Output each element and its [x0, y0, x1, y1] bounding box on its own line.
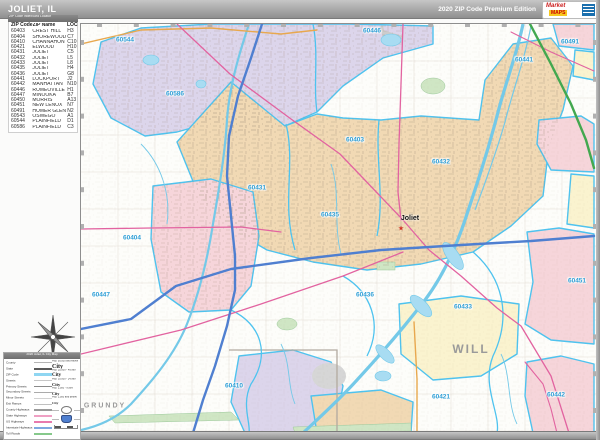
zip-index-title-bar: ZIP Code Index/Grid Locator [8, 15, 78, 22]
zip-label-60544: 60544 [116, 37, 134, 44]
zip-label-60410: 60410 [225, 383, 243, 390]
map-poster-page: JOLIET, IL 2020 ZIP Code Premium Edition… [0, 0, 600, 440]
edition-label: 2020 ZIP Code Premium Edition [438, 6, 536, 13]
legend-line-items: CountyStateZIP CodeStreetsPrimary Street… [4, 359, 52, 437]
zip-label-60442: 60442 [547, 392, 565, 399]
zip-label-60441: 60441 [515, 57, 533, 64]
zip-label-60421: 60421 [432, 394, 450, 401]
zip-label-60451: 60451 [568, 278, 586, 285]
logo-brand-bottom: MAPS [549, 10, 567, 16]
county-label-grundy: GRUNDY [84, 403, 126, 410]
scale-bar [54, 425, 78, 429]
right-edge-bar [596, 0, 600, 440]
county-label-will: WILL [452, 342, 489, 356]
zip-index-table: ZIP Code Index/Grid Locator ZIP Code ZIP… [8, 15, 78, 133]
city-label-joliet: Joliet [401, 215, 419, 222]
header-bar: JOLIET, IL 2020 ZIP Code Premium Edition… [0, 0, 600, 19]
logo-badge-icon [582, 4, 595, 16]
map-canvas: 6054460446604916044160586604036043260431… [81, 24, 596, 434]
city-marker-star-icon: ★ [398, 226, 404, 233]
zip-label-60431: 60431 [248, 185, 266, 192]
footer-bar [0, 431, 600, 440]
zip-label-60403: 60403 [346, 137, 364, 144]
map-legend: 2020 Joliet, IL City Map CountyStateZIP … [3, 352, 81, 440]
zip-index-rows: 60403CREST HILLH360404SHOREWOODC760410CH… [11, 29, 77, 130]
zip-label-60436: 60436 [356, 292, 374, 299]
legend-city-size: Pop. 10,000 - 24,999City [52, 378, 80, 387]
zip-labels-layer: 6054460446604916044160586604036043260431… [81, 24, 596, 434]
zip-label-60586: 60586 [166, 91, 184, 98]
zip-label-60491: 60491 [561, 39, 579, 46]
zip-label-60435: 60435 [321, 212, 339, 219]
legend-city-sizes: Pop. 50,000 and AboveCityPop. 25,000 - 4… [52, 360, 80, 405]
logo-brand-top: Market [546, 3, 565, 9]
zip-index-body: ZIP Code ZIP Name LOC 60403CREST HILLH36… [8, 22, 78, 133]
zip-label-60433: 60433 [454, 304, 472, 311]
legend-city-size: Pop. 2,500 and BelowCity [52, 396, 80, 405]
legend-title: 2020 Joliet, IL City Map [4, 353, 80, 356]
zip-index-title: ZIP Code Index/Grid Locator [8, 15, 78, 19]
legend-city-size: Pop. 50,000 and AboveCity [52, 360, 80, 369]
zip-index-row: 60586PLAINFIELDC3 [11, 125, 77, 130]
zip-label-60404: 60404 [123, 235, 141, 242]
zip-label-60446: 60446 [363, 28, 381, 35]
legend-city-size: Pop. 25,000 - 49,999City [52, 369, 80, 378]
marketmaps-logo: Market MAPS [542, 1, 598, 19]
legend-city-size: Pop. 2,500 - 9,999City [52, 387, 80, 396]
zip-label-60447: 60447 [92, 292, 110, 299]
us-highway-shield-sample [52, 406, 80, 414]
col-zip-name: ZIP Name [33, 23, 67, 28]
interstate-shield-sample [52, 415, 80, 423]
legend-item-toll-roads: Toll Roads [6, 431, 52, 437]
zip-label-60432: 60432 [432, 159, 450, 166]
